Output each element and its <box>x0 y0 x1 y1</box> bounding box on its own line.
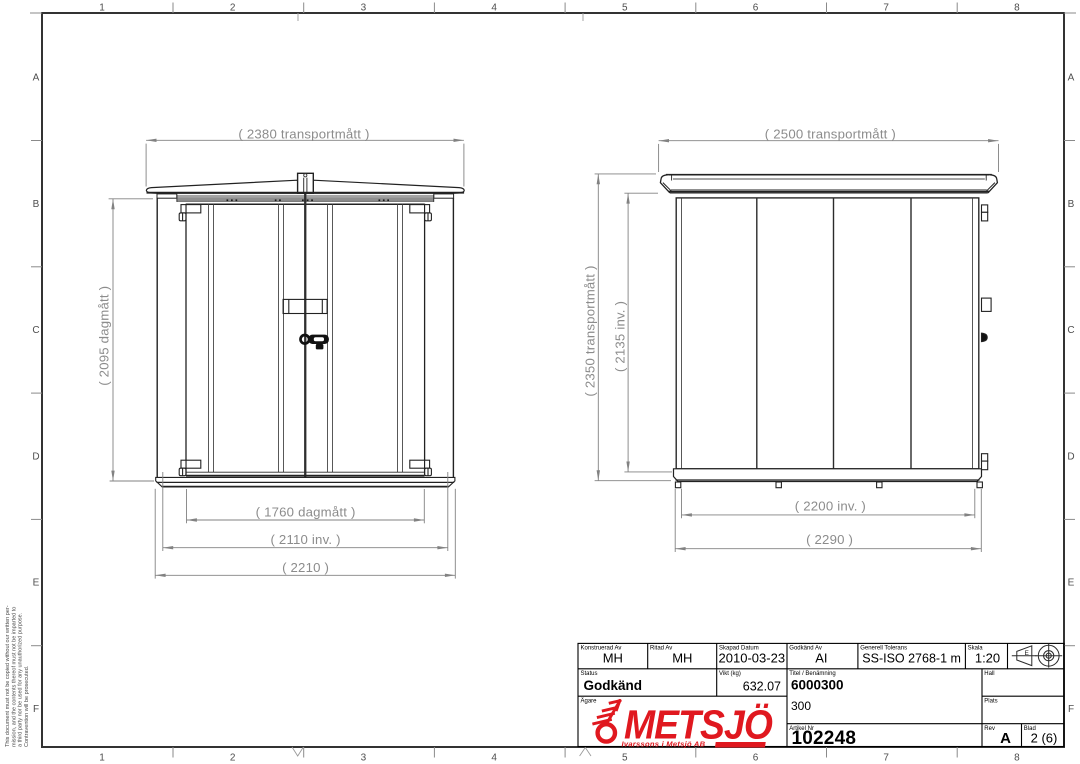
svg-text:C: C <box>1067 325 1074 336</box>
svg-text:B: B <box>33 199 40 210</box>
svg-text:( 1760 dagmått ): ( 1760 dagmått ) <box>256 505 356 520</box>
svg-text:( 2095 dagmått ): ( 2095 dagmått ) <box>97 286 112 386</box>
svg-text:C: C <box>32 325 39 336</box>
svg-text:A: A <box>1068 73 1075 84</box>
svg-text:Ritad Av: Ritad Av <box>650 646 672 652</box>
svg-text:A: A <box>1000 730 1011 747</box>
svg-text:( 2210 ): ( 2210 ) <box>282 560 329 575</box>
svg-text:2: 2 <box>230 753 236 764</box>
svg-text:2: 2 <box>230 3 236 14</box>
svg-text:( 2135 inv. ): ( 2135 inv. ) <box>612 301 627 372</box>
svg-text:4: 4 <box>491 3 497 14</box>
svg-text:4: 4 <box>491 753 497 764</box>
svg-text:8: 8 <box>1014 3 1020 14</box>
svg-text:( 2290 ): ( 2290 ) <box>806 532 853 547</box>
svg-text:6: 6 <box>753 753 759 764</box>
svg-text:1:20: 1:20 <box>975 651 1000 666</box>
svg-text:2010-03-23: 2010-03-23 <box>719 651 786 666</box>
svg-text:1: 1 <box>99 3 105 14</box>
svg-text:632.07: 632.07 <box>743 680 781 694</box>
svg-text:E: E <box>1025 650 1030 657</box>
svg-text:Vikt (kg): Vikt (kg) <box>719 671 741 677</box>
svg-text:5: 5 <box>622 753 628 764</box>
svg-text:Rev: Rev <box>984 726 995 732</box>
svg-text:5: 5 <box>622 3 628 14</box>
svg-text:3: 3 <box>361 753 367 764</box>
svg-text:D: D <box>1067 451 1074 462</box>
svg-text:102248: 102248 <box>792 728 857 749</box>
svg-text:3: 3 <box>361 3 367 14</box>
svg-text:Ägare: Ägare <box>581 698 598 705</box>
svg-text:MH: MH <box>603 651 623 666</box>
svg-text:6000300: 6000300 <box>791 678 844 693</box>
svg-text:( 2380 transportmått ): ( 2380 transportmått ) <box>238 127 369 142</box>
svg-text:a third party nor be used for: a third party nor be used for any unauth… <box>18 612 24 747</box>
svg-text:D: D <box>32 451 39 462</box>
svg-text:This document must not be copi: This document must not be copied without… <box>5 605 11 747</box>
svg-text:B: B <box>1068 199 1075 210</box>
svg-text:7: 7 <box>883 3 889 14</box>
svg-text:E: E <box>1068 578 1075 589</box>
svg-text:Contravention will be prosecut: Contravention will be prosecuted. <box>24 665 30 747</box>
svg-text:AI: AI <box>815 651 827 666</box>
svg-text:300: 300 <box>791 699 811 713</box>
svg-text:( 2350 transportmått ): ( 2350 transportmått ) <box>582 265 597 396</box>
svg-text:6: 6 <box>753 3 759 14</box>
svg-text:Status: Status <box>581 671 598 677</box>
svg-text:Ivarssons i Metsjö AB: Ivarssons i Metsjö AB <box>622 740 706 749</box>
svg-text:( 2500 transportmått ): ( 2500 transportmått ) <box>765 127 896 142</box>
svg-text:F: F <box>1068 704 1074 715</box>
svg-text:MH: MH <box>672 651 692 666</box>
svg-text:A: A <box>33 73 40 84</box>
svg-text:1: 1 <box>99 753 105 764</box>
svg-text:7: 7 <box>883 753 889 764</box>
svg-text:E: E <box>33 578 40 589</box>
svg-text:F: F <box>33 704 39 715</box>
svg-text:Titel / Benämning: Titel / Benämning <box>789 671 835 677</box>
svg-text:8: 8 <box>1014 753 1020 764</box>
svg-text:Hall: Hall <box>984 671 994 677</box>
svg-text:( 2200 inv. ): ( 2200 inv. ) <box>795 499 866 514</box>
svg-text:2 (6): 2 (6) <box>1031 731 1058 746</box>
svg-text:SS-ISO 2768-1 m: SS-ISO 2768-1 m <box>862 652 961 666</box>
svg-text:( 2110 inv. ): ( 2110 inv. ) <box>270 532 340 547</box>
svg-text:Plats: Plats <box>984 699 997 705</box>
svg-text:mission, and the contents ther: mission, and the contents thereof must n… <box>11 607 17 747</box>
svg-text:Godkänd: Godkänd <box>584 678 643 693</box>
